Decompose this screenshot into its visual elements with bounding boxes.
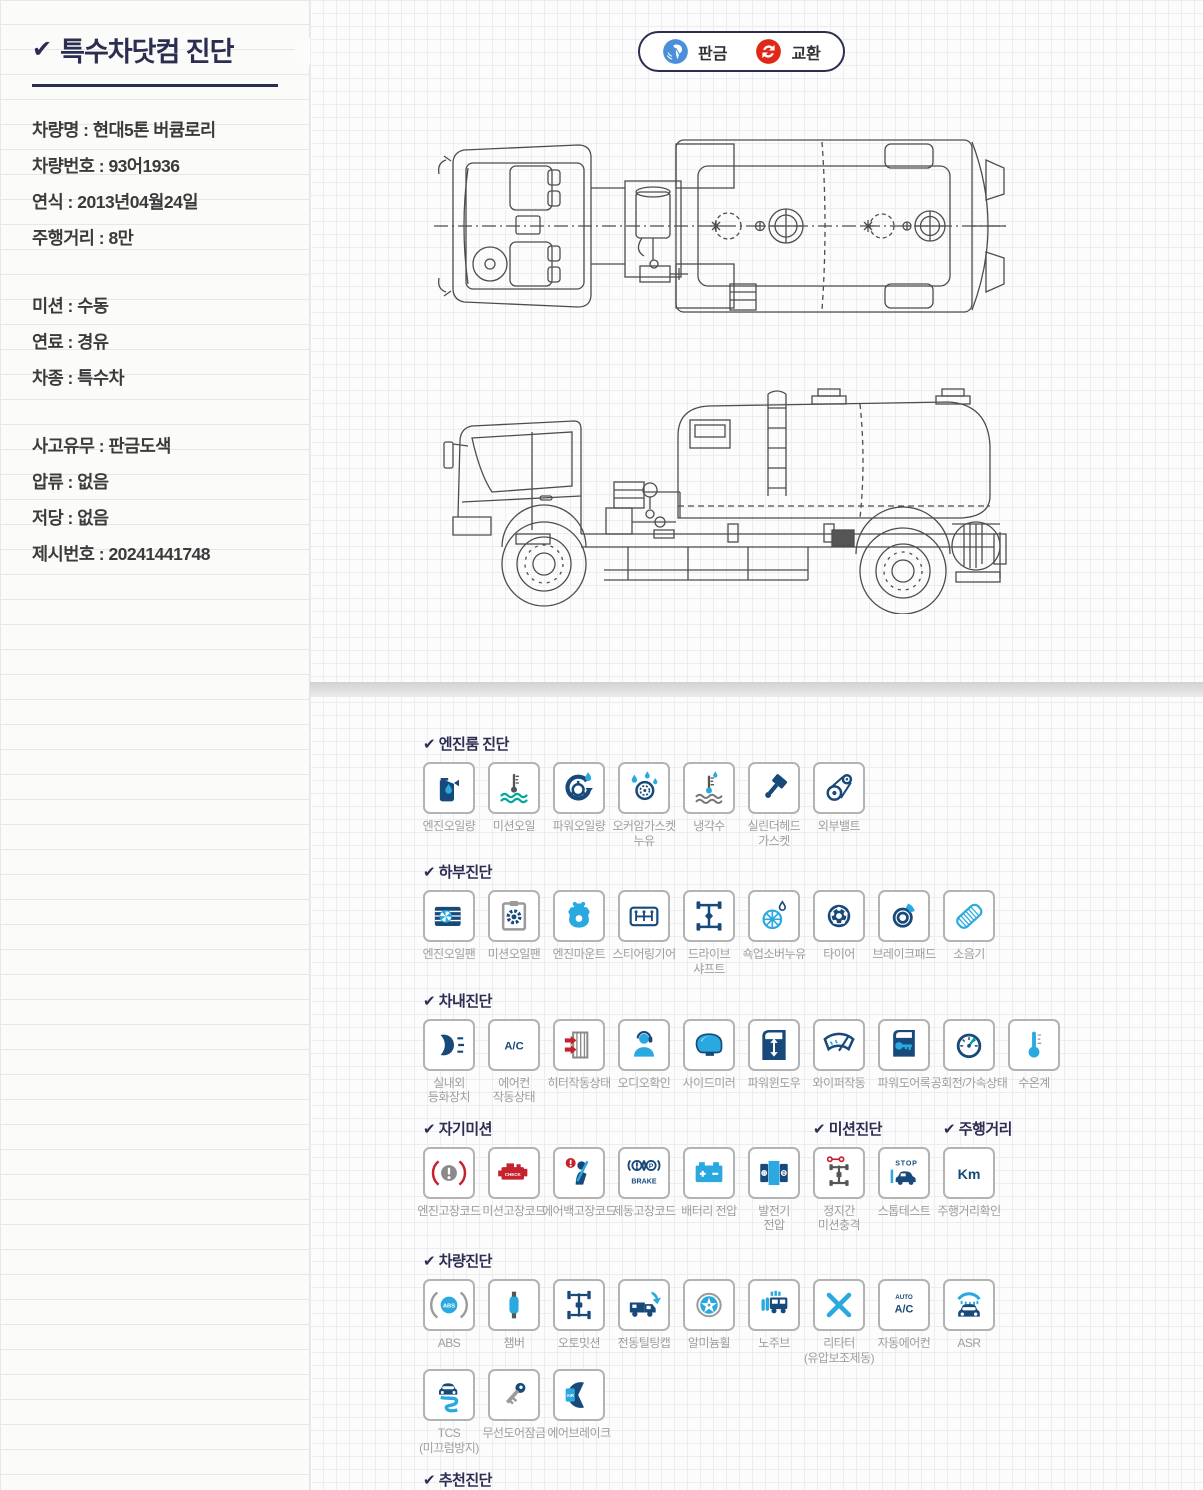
diagnostic-item: 리타터 (유압보조제동) xyxy=(813,1279,865,1365)
diagnostic-item-label: ASR xyxy=(922,1336,1016,1351)
legend: 판금교환 xyxy=(638,31,845,72)
vehicle-field: 차량번호 : 93어1936 xyxy=(32,148,310,184)
diagnostic-item: 오커암가스켓 누유 xyxy=(618,762,670,848)
diagnostic-section: ✔ 추천진단No Accident무사고기능수리완료출고준비완료P.T.O xyxy=(423,1469,1143,1490)
svg-text:STOP: STOP xyxy=(895,1159,917,1167)
legend-item: 판금 xyxy=(662,38,727,65)
diagnostic-section: ✔ 엔진룸 진단엔진오일량미션오일파워오일량오커암가스켓 누유냉각수실린더헤드 … xyxy=(423,733,1143,848)
tire-icon xyxy=(813,890,865,942)
panel-notch xyxy=(293,37,310,65)
vehicle-fields: 차량명 : 현대5톤 버큠로리차량번호 : 93어1936연식 : 2013년0… xyxy=(32,112,310,572)
diagnostic-item: 정지간 미션충격 xyxy=(813,1147,865,1233)
muffler-icon xyxy=(943,890,995,942)
stop-test-icon: STOP xyxy=(878,1147,930,1199)
svg-text:Km: Km xyxy=(958,1167,981,1183)
engine-oil-pan-icon xyxy=(423,890,475,942)
idle-accel-state-icon xyxy=(943,1019,995,1071)
svg-text:P: P xyxy=(649,1163,654,1170)
section-header: ✔ 추천진단 xyxy=(423,1469,1143,1490)
vehicle-field: 차량명 : 현대5톤 버큠로리 xyxy=(32,112,310,148)
diagnostic-item: A/C에어컨 작동상태 xyxy=(488,1019,540,1105)
audio-check-icon xyxy=(618,1019,670,1071)
diagnostic-item: 드라이브 샤프트 xyxy=(683,890,735,976)
diagnostic-item-label: 에어브레이크 xyxy=(532,1426,626,1441)
vehicle-info-panel: ✔ 특수차닷컴 진단 차량명 : 현대5톤 버큠로리차량번호 : 93어1936… xyxy=(0,0,310,1490)
rocker-arm-gasket-leak-icon xyxy=(618,762,670,814)
diagnostics-area: ✔ 엔진룸 진단엔진오일량미션오일파워오일량오커암가스켓 누유냉각수실린더헤드 … xyxy=(423,733,1143,1490)
airbag-fault-code-icon xyxy=(553,1147,605,1199)
shock-absorber-leak-icon xyxy=(748,890,800,942)
chamber-icon xyxy=(488,1279,540,1331)
truck-top-view-drawing xyxy=(430,126,1010,326)
section-header: ✔ 미션진단 xyxy=(813,1118,930,1139)
section-header: ✔ 차내진단 xyxy=(423,990,1143,1011)
outer-belt-icon xyxy=(813,762,865,814)
battery-voltage-icon xyxy=(683,1147,735,1199)
icon-row: ABSABS챔버오토밋션전동틸팅캡알미늄휠노주브리타터 (유압보조제동)AUTO… xyxy=(423,1279,1143,1365)
auto-aircon-icon: AUTOA/C xyxy=(878,1279,930,1331)
aircon-state-icon: A/C xyxy=(488,1019,540,1071)
vehicle-field: 연식 : 2013년04월24일 xyxy=(32,184,310,220)
truck-side-view-drawing xyxy=(428,384,1008,614)
panel-title-row: ✔ 특수차닷컴 진단 xyxy=(32,30,278,87)
diagnostic-item-label: 외부밸트 xyxy=(792,819,886,834)
vehicle-field: 연료 : 경유 xyxy=(32,324,310,360)
auto-mission-icon xyxy=(553,1279,605,1331)
vehicle-field: 주행거리 : 8만 xyxy=(32,220,310,256)
engine-mount-icon xyxy=(553,890,605,942)
abs-icon: ABS xyxy=(423,1279,475,1331)
diagnostic-item: ASR xyxy=(943,1279,995,1351)
vehicle-field: 차종 : 특수차 xyxy=(32,360,310,396)
icon-row: 엔진고장코드CHECK미션고장코드에어백고장코드PBRAKE제동고장코드배터리 … xyxy=(423,1147,800,1233)
drive-shaft-icon xyxy=(683,890,735,942)
svg-text:A/C: A/C xyxy=(504,1040,523,1052)
power-door-lock-icon xyxy=(878,1019,930,1071)
svg-text:ABS: ABS xyxy=(443,1303,455,1309)
svg-text:BRAKE: BRAKE xyxy=(631,1177,656,1185)
coolant-temp-gauge-icon xyxy=(1008,1019,1060,1071)
engine-fault-code-icon xyxy=(423,1147,475,1199)
icon-row: Km주행거리확인 xyxy=(943,1147,1012,1219)
vehicle-field: 사고유무 : 판금도색 xyxy=(32,428,310,464)
panel-title: 특수차닷컴 진단 xyxy=(60,30,233,69)
generator-voltage-icon xyxy=(748,1147,800,1199)
svg-text:AIR: AIR xyxy=(567,1393,574,1398)
diagnostic-section: ✔ 하부진단엔진오일팬미션오일팬엔진마운트스티어링기어드라이브 샤프트쇽업소버누… xyxy=(423,861,1143,976)
heater-state-icon xyxy=(553,1019,605,1071)
field-group: 미션 : 수동연료 : 경유차종 : 특수차 xyxy=(32,288,310,396)
icon-row: 엔진오일팬미션오일팬엔진마운트스티어링기어드라이브 샤프트쇽업소버누유타이어브레… xyxy=(423,890,1143,976)
no-hub-icon xyxy=(748,1279,800,1331)
legend-item: 교환 xyxy=(755,38,820,65)
section-header: ✔ 차량진단 xyxy=(423,1250,1143,1271)
interior-exterior-lights-icon xyxy=(423,1019,475,1071)
section-header: ✔ 자기미션 xyxy=(423,1118,800,1139)
diagnosis-main: 판금교환 xyxy=(310,0,1203,1490)
asr-icon xyxy=(943,1279,995,1331)
legend-label: 판금 xyxy=(698,40,727,64)
brake-fault-code-icon: PBRAKE xyxy=(618,1147,670,1199)
diagnostic-section: ✔ 자기미션엔진고장코드CHECK미션고장코드에어백고장코드PBRAKE제동고장… xyxy=(423,1118,800,1237)
report-page: ✔ 특수차닷컴 진단 차량명 : 현대5톤 버큠로리차량번호 : 93어1936… xyxy=(0,0,1203,1490)
svg-text:CHECK: CHECK xyxy=(505,1172,522,1177)
vehicle-field: 제시번호 : 20241441748 xyxy=(32,536,310,572)
icon-row: 엔진오일량미션오일파워오일량오커암가스켓 누유냉각수실린더헤드 가스켓외부밸트 xyxy=(423,762,1143,848)
field-group: 차량명 : 현대5톤 버큠로리차량번호 : 93어1936연식 : 2013년0… xyxy=(32,112,310,256)
diagnostic-item: 수온계 xyxy=(1008,1019,1060,1091)
diagnostic-item: AIR에어브레이크 xyxy=(553,1369,605,1441)
engine-oil-level-icon xyxy=(423,762,475,814)
steering-gear-icon xyxy=(618,890,670,942)
mission-fault-code-icon: CHECK xyxy=(488,1147,540,1199)
retarder-icon xyxy=(813,1279,865,1331)
stop-mission-shock-icon xyxy=(813,1147,865,1199)
diagnostic-item: 소음기 xyxy=(943,890,995,962)
brake-pad-icon xyxy=(878,890,930,942)
cylinder-head-gasket-icon xyxy=(748,762,800,814)
mileage-check-icon: Km xyxy=(943,1147,995,1199)
legend-label: 교환 xyxy=(791,40,820,64)
section-header: ✔ 주행거리 xyxy=(943,1118,1012,1139)
svg-text:A/C: A/C xyxy=(895,1304,914,1316)
section-header: ✔ 하부진단 xyxy=(423,861,1143,882)
section-header: ✔ 엔진룸 진단 xyxy=(423,733,1143,754)
icon-row: 정지간 미션충격STOP스톱테스트 xyxy=(813,1147,930,1233)
section-group-row: ✔ 자기미션엔진고장코드CHECK미션고장코드에어백고장코드PBRAKE제동고장… xyxy=(423,1118,1143,1250)
side-mirror-icon xyxy=(683,1019,735,1071)
vehicle-field: 저당 : 없음 xyxy=(32,500,310,536)
vehicle-field: 미션 : 수동 xyxy=(32,288,310,324)
diagnostic-item-label: 수온계 xyxy=(987,1076,1081,1091)
coolant-icon xyxy=(683,762,735,814)
mission-oil-pan-icon xyxy=(488,890,540,942)
field-group: 사고유무 : 판금도색압류 : 없음저당 : 없음제시번호 : 20241441… xyxy=(32,428,310,572)
exchange-icon xyxy=(755,38,782,65)
diagnostic-section: ✔ 미션진단정지간 미션충격STOP스톱테스트 xyxy=(813,1118,930,1237)
check-icon: ✔ xyxy=(32,35,51,64)
diagnostic-section: ✔ 차량진단ABSABS챔버오토밋션전동틸팅캡알미늄휠노주브리타터 (유압보조제… xyxy=(423,1250,1143,1456)
diagnostic-section: ✔ 차내진단실내외 등화장치A/C에어컨 작동상태히터작동상태오디오확인사이드미… xyxy=(423,990,1143,1105)
tcs-icon xyxy=(423,1369,475,1421)
diagnostic-item-label: 주행거리확인 xyxy=(922,1204,1016,1219)
diagnostic-item: TCS (미끄럼방지) xyxy=(423,1369,475,1455)
wireless-door-lock-icon xyxy=(488,1369,540,1421)
diagnostic-item: 외부밸트 xyxy=(813,762,865,834)
icon-row: TCS (미끄럼방지)무선도어잠금AIR에어브레이크 xyxy=(423,1369,1143,1455)
diagnostic-section: ✔ 주행거리Km주행거리확인 xyxy=(943,1118,1012,1237)
panel-beating-icon xyxy=(662,38,689,65)
power-oil-level-icon xyxy=(553,762,605,814)
air-brake-icon: AIR xyxy=(553,1369,605,1421)
diagnostic-item: 실린더헤드 가스켓 xyxy=(748,762,800,848)
svg-text:AUTO: AUTO xyxy=(895,1294,913,1301)
diagnostic-item: Km주행거리확인 xyxy=(943,1147,995,1219)
section-divider xyxy=(310,682,1203,697)
aluminum-wheel-icon xyxy=(683,1279,735,1331)
diagnostic-item-label: 소음기 xyxy=(922,947,1016,962)
icon-row: 실내외 등화장치A/C에어컨 작동상태히터작동상태오디오확인사이드미러파워윈도우… xyxy=(423,1019,1143,1105)
power-window-icon xyxy=(748,1019,800,1071)
vehicle-field: 압류 : 없음 xyxy=(32,464,310,500)
electric-tilting-cab-icon xyxy=(618,1279,670,1331)
wiper-icon xyxy=(813,1019,865,1071)
mission-oil-icon xyxy=(488,762,540,814)
